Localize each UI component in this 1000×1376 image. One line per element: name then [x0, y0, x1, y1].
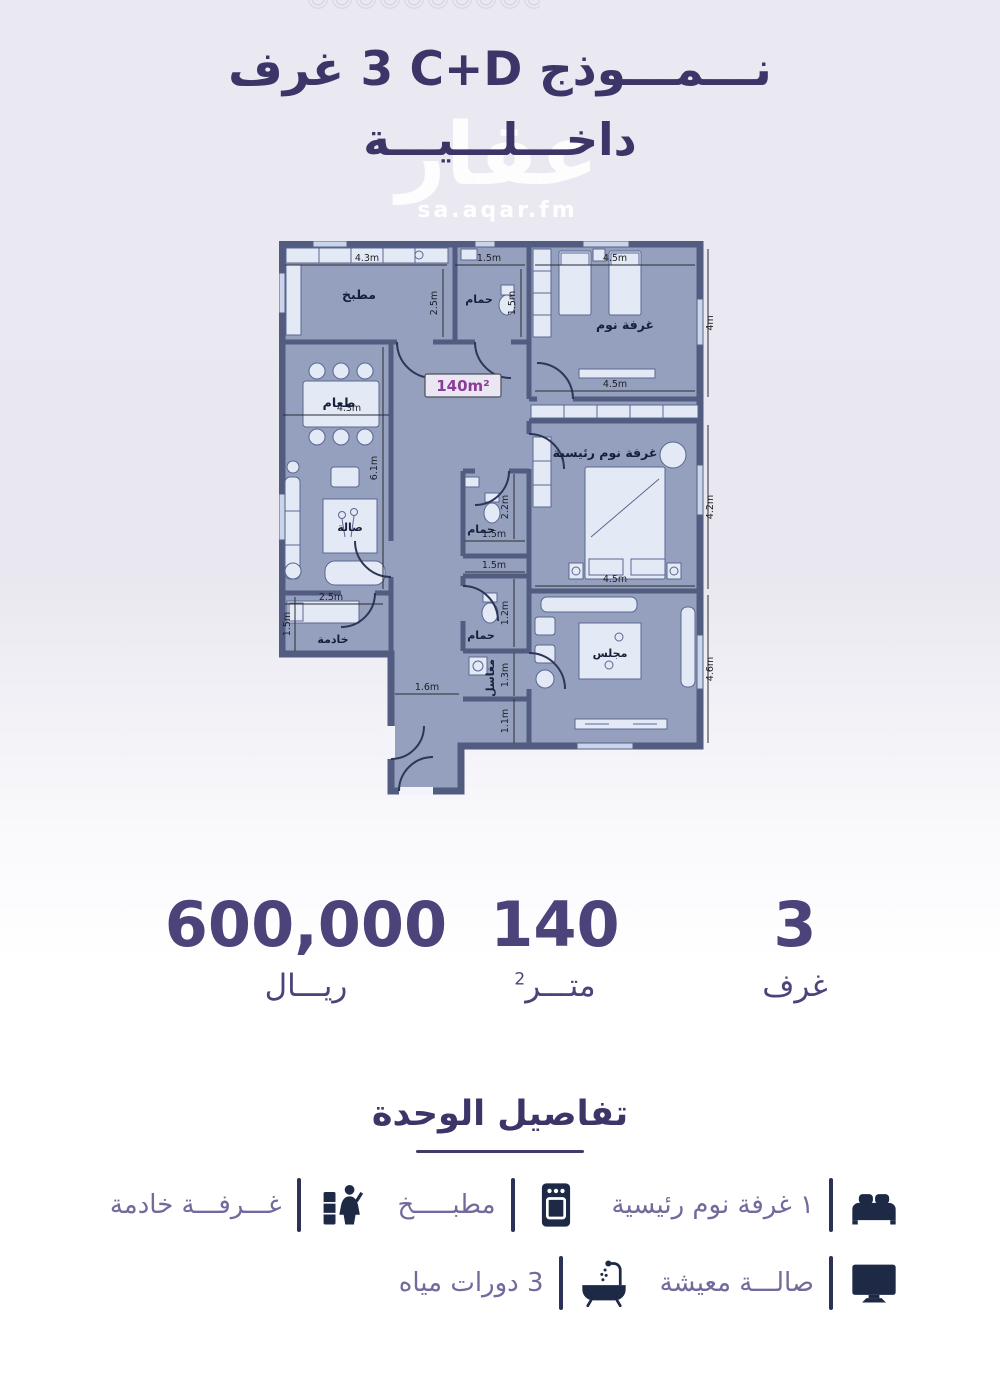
watermark-url: sa.aqar.fm [0, 200, 995, 222]
dim-label: 1.5m [282, 612, 293, 636]
price-unit: ريـــال [148, 968, 464, 1004]
dim-label: 4.5m [603, 574, 627, 585]
dim-label: 4.5m [603, 253, 627, 264]
area-badge-label: 140m² [436, 377, 490, 395]
title-model: نـــمـــوذج [539, 42, 772, 97]
dim-label: 2.5m [429, 291, 440, 315]
dim-label: 4.3m [355, 253, 379, 264]
dim-label: 1.1m [500, 709, 511, 733]
maid-icon [316, 1179, 368, 1231]
dim-label: 2.5m [319, 592, 343, 603]
rooms-unit: غرف [710, 968, 880, 1004]
stat-area: 140 متـــر2 [453, 894, 657, 1004]
dim-label: 2.2m [500, 495, 511, 519]
stat-rooms: 3 غرف [710, 894, 880, 1004]
area-unit: متـــر2 [453, 968, 657, 1004]
feature-divider [297, 1178, 301, 1232]
stat-price: 600,000 ريـــال [148, 894, 464, 1004]
feature-kitchen: مطبـــــخ [398, 1178, 582, 1232]
feature-label: غـــرفـــة خادمة [110, 1190, 282, 1220]
scallop-decoration [306, 0, 540, 15]
room-label-bathroom-3: حمام [467, 629, 495, 642]
title-line1: نـــمـــوذج C+D 3 غرف [0, 42, 1000, 97]
feature-label: 3 دورات مياه [399, 1268, 544, 1298]
dim-label: 1.2m [500, 601, 511, 625]
feature-divider [511, 1178, 515, 1232]
room-label-bathroom-2: حمام [467, 523, 495, 536]
page-title: نـــمـــوذج C+D 3 غرف داخـــلـــيـــة [0, 42, 1000, 166]
bathtub-icon [578, 1257, 630, 1309]
feature-living-room: صالـــة معيشة [660, 1256, 900, 1310]
room-label-kitchen: مطبخ [342, 287, 376, 302]
feature-divider [829, 1256, 833, 1310]
title-rooms: 3 غرف [228, 42, 393, 97]
feature-label: مطبـــــخ [398, 1190, 496, 1220]
details-section-header: تفاصيل الوحدة [0, 1094, 1000, 1153]
price-value: 600,000 [148, 894, 464, 956]
dim-label: 6.1m [369, 456, 380, 480]
dim-label: 1.3m [500, 663, 511, 687]
oven-icon [530, 1179, 582, 1231]
dim-label: 4m [705, 315, 716, 330]
feature-label: ١ غرفة نوم رئيسية [612, 1190, 814, 1220]
room-label-bathroom-1: حمام [465, 293, 493, 306]
floor-plan: 4.3m 1.5m 4.5m 4.3m 4.5m 1.5m 1.5m 2.5m … [279, 241, 721, 801]
room-label-laundry: مغاسل [484, 659, 497, 697]
dim-label: 4.2m [705, 495, 716, 519]
feature-divider [829, 1178, 833, 1232]
heading-underline [416, 1150, 584, 1153]
dim-label: 1.5m [482, 560, 506, 571]
tv-icon [848, 1257, 900, 1309]
feature-maid-room: غـــرفـــة خادمة [110, 1178, 368, 1232]
features-list: ١ غرفة نوم رئيسية مطبـــــخ [80, 1178, 900, 1310]
area-unit-sup: 2 [514, 970, 525, 990]
details-heading: تفاصيل الوحدة [0, 1094, 1000, 1134]
dim-label: 1.5m [477, 253, 501, 264]
room-label-majlis: مجلس [593, 647, 628, 660]
floor-plan-svg: 4.3m 1.5m 4.5m 4.3m 4.5m 1.5m 1.5m 2.5m … [279, 241, 721, 801]
room-label-living: صالة [337, 521, 363, 534]
dim-label: 1.6m [415, 682, 439, 693]
feature-label: صالـــة معيشة [660, 1268, 814, 1298]
room-label-maid: خادمة [317, 633, 348, 646]
room-label-dining: طعام [323, 395, 356, 411]
room-label-master: غرفة نوم رئيسية [553, 445, 658, 461]
rooms-value: 3 [710, 894, 880, 956]
area-value: 140 [453, 894, 657, 956]
title-line2: داخـــلـــيـــة [0, 113, 1000, 166]
dim-label: 1.5m [507, 291, 518, 315]
feature-master-bedroom: ١ غرفة نوم رئيسية [612, 1178, 900, 1232]
dim-label: 4.6m [705, 657, 716, 681]
features-row-1: ١ غرفة نوم رئيسية مطبـــــخ [80, 1178, 900, 1232]
feature-bathrooms: 3 دورات مياه [399, 1256, 630, 1310]
title-code: C+D [410, 42, 523, 97]
room-label-bedroom: غرفة نوم [596, 317, 654, 333]
area-badge: 140m² [425, 374, 501, 397]
bed-icon [848, 1179, 900, 1231]
feature-divider [559, 1256, 563, 1310]
dim-label: 4.5m [603, 379, 627, 390]
real-estate-flyer: عقار sa.aqar.fm نـــمـــوذج C+D 3 غرف دا… [0, 0, 1000, 1376]
features-row-2: صالـــة معيشة 3 دورات مياه [80, 1256, 900, 1310]
